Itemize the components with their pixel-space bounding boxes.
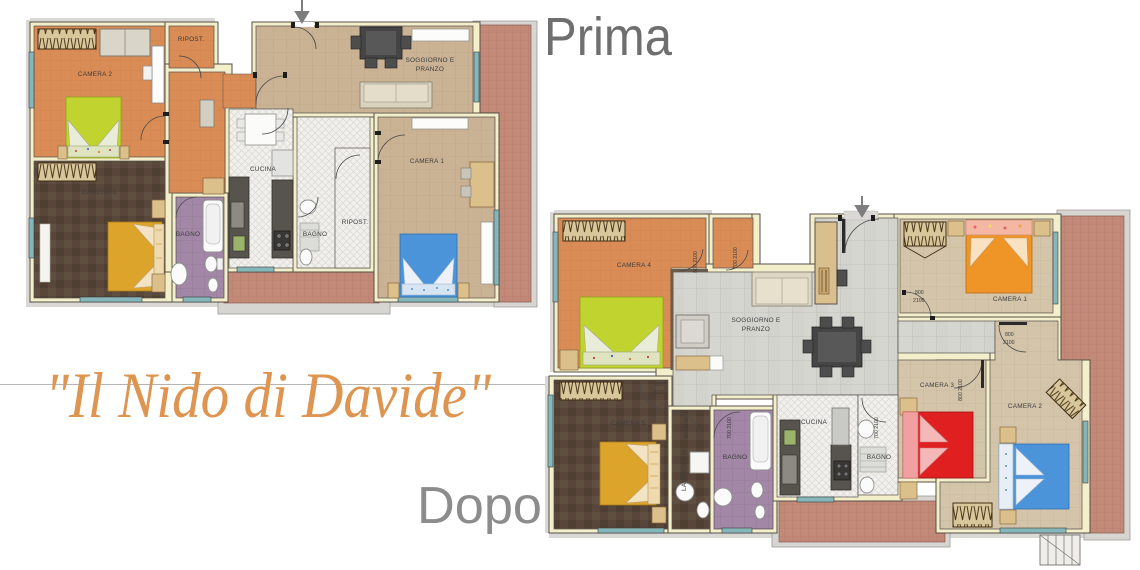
svg-text:800: 800: [1005, 332, 1014, 338]
svg-text:BAGNO: BAGNO: [176, 231, 200, 238]
svg-text:CAMERA 3: CAMERA 3: [920, 382, 955, 389]
svg-text:SOGGIORNO E: SOGGIORNO E: [732, 317, 781, 324]
svg-text:BAGNO: BAGNO: [723, 454, 747, 461]
svg-text:PRANZO: PRANZO: [742, 326, 770, 333]
svg-text:700 2100: 700 2100: [727, 417, 733, 439]
svg-text:CAMERA 2: CAMERA 2: [78, 71, 113, 78]
svg-text:Dopo: Dopo: [417, 477, 542, 535]
svg-text:2100: 2100: [913, 298, 925, 304]
svg-text:Prima: Prima: [544, 7, 673, 67]
svg-text:2100: 2100: [653, 390, 665, 396]
svg-text:800 2100: 800 2100: [958, 379, 964, 401]
svg-text:CUCINA: CUCINA: [250, 166, 276, 173]
svg-text:RIPOST.: RIPOST.: [178, 36, 205, 43]
svg-text:CUCINA: CUCINA: [801, 419, 827, 426]
svg-text:CAMERA 5: CAMERA 5: [611, 420, 646, 427]
svg-text:800: 800: [655, 382, 664, 388]
svg-text:800 2100: 800 2100: [684, 417, 690, 439]
svg-text:800 2100: 800 2100: [693, 251, 699, 273]
svg-text:PRANZO: PRANZO: [416, 66, 444, 73]
svg-text:BAGNO: BAGNO: [303, 231, 327, 238]
svg-text:2100: 2100: [1003, 340, 1015, 346]
svg-text:CAMERA 2: CAMERA 2: [1008, 403, 1043, 410]
svg-text:700 2100: 700 2100: [733, 247, 739, 269]
svg-text:CAMERA 1: CAMERA 1: [410, 158, 445, 165]
svg-text:LAVANDERIA: LAVANDERIA: [681, 448, 688, 491]
svg-text:CAMERA 1: CAMERA 1: [993, 296, 1028, 303]
svg-text:700 2100: 700 2100: [874, 417, 880, 439]
svg-text:BAGNO: BAGNO: [867, 454, 891, 461]
svg-text:SOGGIORNO E: SOGGIORNO E: [406, 57, 455, 64]
svg-text:"Il Nido di Davide": "Il Nido di Davide": [45, 360, 492, 432]
svg-text:RIPOST.: RIPOST.: [342, 219, 369, 226]
svg-text:CAMERA 3: CAMERA 3: [82, 189, 117, 196]
svg-text:800: 800: [915, 290, 924, 296]
svg-text:CAMERA 4: CAMERA 4: [617, 262, 652, 269]
